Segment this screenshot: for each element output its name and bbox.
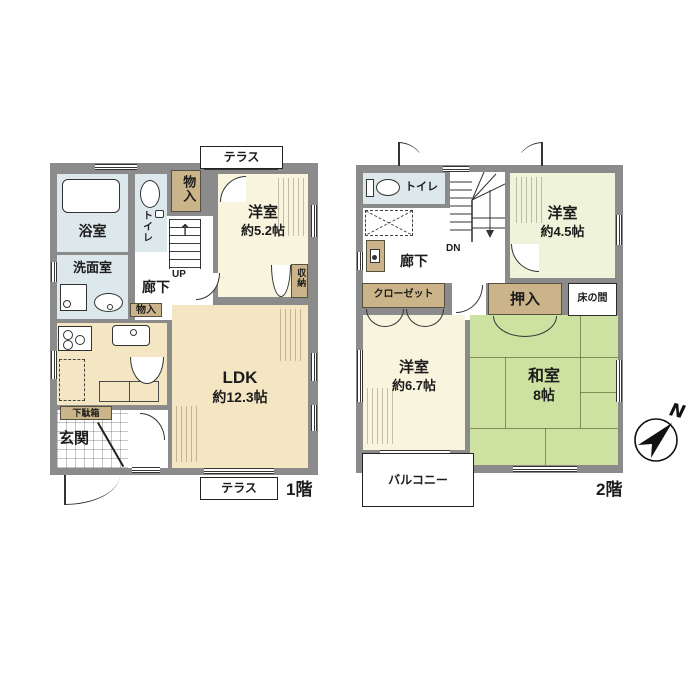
washroom-label: 洗面室: [57, 260, 128, 276]
western-room-4-5-size: 約4.5帖: [510, 224, 615, 240]
storage-top-label: 物入: [180, 175, 196, 203]
bathtub: [62, 179, 120, 213]
tokonoma-label: 床の間: [569, 293, 616, 306]
window: [204, 468, 274, 474]
toilet-tank-icon: [366, 179, 374, 197]
stairs-up-arrow: ↑: [170, 221, 200, 240]
compass-n-label: N: [667, 399, 687, 423]
floor-hatch: [280, 309, 304, 361]
closet-1f-label: 収納: [295, 268, 306, 288]
entrance-label: 玄関: [59, 430, 89, 449]
bathroom-label: 浴室: [57, 223, 128, 241]
terrace-top-label: テラス: [201, 150, 282, 165]
washing-machine-icon: [60, 284, 87, 311]
western-room-6-7: 洋室 約6.7帖: [363, 315, 465, 450]
oshiire-closet: 押入: [488, 283, 562, 315]
washroom: 洗面室: [57, 255, 128, 319]
balcony-box: バルコニー: [362, 453, 474, 507]
storage-top-1f: 物入: [171, 170, 201, 212]
cabinet-door-icon: [370, 249, 380, 263]
western-room-5-2-size: 約5.2帖: [218, 223, 308, 239]
stairs-down-label: DN: [446, 243, 460, 256]
exterior-door-leaf: [517, 142, 543, 166]
toilet-bowl-icon: [376, 179, 400, 196]
toilet-room-2f: トイレ: [363, 173, 445, 204]
storage-small-label: 物入: [131, 305, 161, 318]
refrigerator-space-icon: [59, 359, 85, 401]
stairs-down: [450, 172, 505, 242]
window: [311, 405, 317, 431]
sink-icon: [94, 293, 123, 312]
floor-hatch: [176, 406, 200, 462]
window: [513, 466, 577, 472]
toilet-tank-icon: [155, 210, 164, 218]
compass-north-icon: N: [628, 396, 692, 468]
storage-small-1f: 物入: [130, 303, 162, 317]
japanese-room-name: 和室: [470, 367, 618, 387]
window: [311, 205, 317, 237]
hallway-1f-label: 廊下: [142, 279, 170, 297]
toilet-label-1f: トイレ: [139, 210, 152, 243]
floor-hatch: [367, 388, 393, 444]
shoe-cabinet-label: 下駄箱: [61, 408, 111, 419]
tokonoma-alcove: 床の間: [568, 283, 617, 316]
western-room-6-7-size: 約6.7帖: [363, 378, 465, 394]
terrace-bottom-box: テラス: [200, 477, 278, 500]
entrance-door-arc: [64, 475, 120, 505]
laundry-space-icon: [365, 210, 413, 236]
floor1-label: 1階: [286, 479, 312, 500]
window: [443, 166, 469, 172]
window: [51, 351, 57, 379]
stairs-up-label: UP: [172, 269, 186, 282]
japanese-room-size: 8帖: [470, 387, 618, 405]
balcony-label: バルコニー: [363, 473, 473, 488]
window: [311, 353, 317, 381]
floor1-plan: 浴室 トイレ 物入 洋室 約5.2帖 洗面室 ↑ UP 廊下 LDK 約12.3…: [50, 163, 318, 475]
window: [616, 215, 622, 245]
door-arc: [196, 273, 220, 300]
toilet-bowl-icon: [140, 180, 160, 208]
hallway-2f-label: 廊下: [400, 253, 428, 271]
stove-icon: [58, 326, 92, 351]
vent-window: [132, 467, 160, 473]
bathroom: 浴室: [57, 174, 128, 252]
japanese-room: 和室 8帖: [470, 315, 618, 465]
window: [357, 350, 363, 402]
closet-1f: 収納: [291, 264, 308, 298]
window: [616, 360, 622, 402]
toilet-room-1f: トイレ: [135, 174, 167, 252]
floor2-plan: トイレ DN 廊下 洋室 約4.5帖: [356, 165, 623, 473]
ldk-size: 約12.3帖: [172, 389, 308, 407]
stairs-up: ↑: [169, 219, 201, 269]
oshiire-label: 押入: [489, 291, 561, 310]
western-room-4-5-name: 洋室: [510, 205, 615, 224]
floor2-label: 2階: [596, 479, 622, 500]
exterior-door-leaf: [398, 142, 424, 166]
hall-cabinet: [366, 240, 385, 272]
shoe-cabinet: 下駄箱: [60, 406, 112, 420]
terrace-top-box: テラス: [200, 146, 283, 169]
western-room-5-2-name: 洋室: [218, 204, 308, 223]
terrace-bottom-label: テラス: [201, 481, 277, 496]
closet-2f: クローゼット: [362, 283, 445, 308]
ldk-name: LDK: [172, 367, 308, 388]
window: [357, 252, 363, 270]
ldk-room: LDK 約12.3帖: [172, 305, 308, 468]
window: [95, 164, 137, 170]
kitchen-sink-icon: [112, 325, 150, 346]
counter-icon: [99, 381, 159, 402]
western-room-6-7-name: 洋室: [363, 359, 465, 378]
toilet-label-2f: トイレ: [405, 181, 438, 195]
closet-2f-label: クローゼット: [363, 289, 444, 302]
window: [51, 262, 57, 282]
